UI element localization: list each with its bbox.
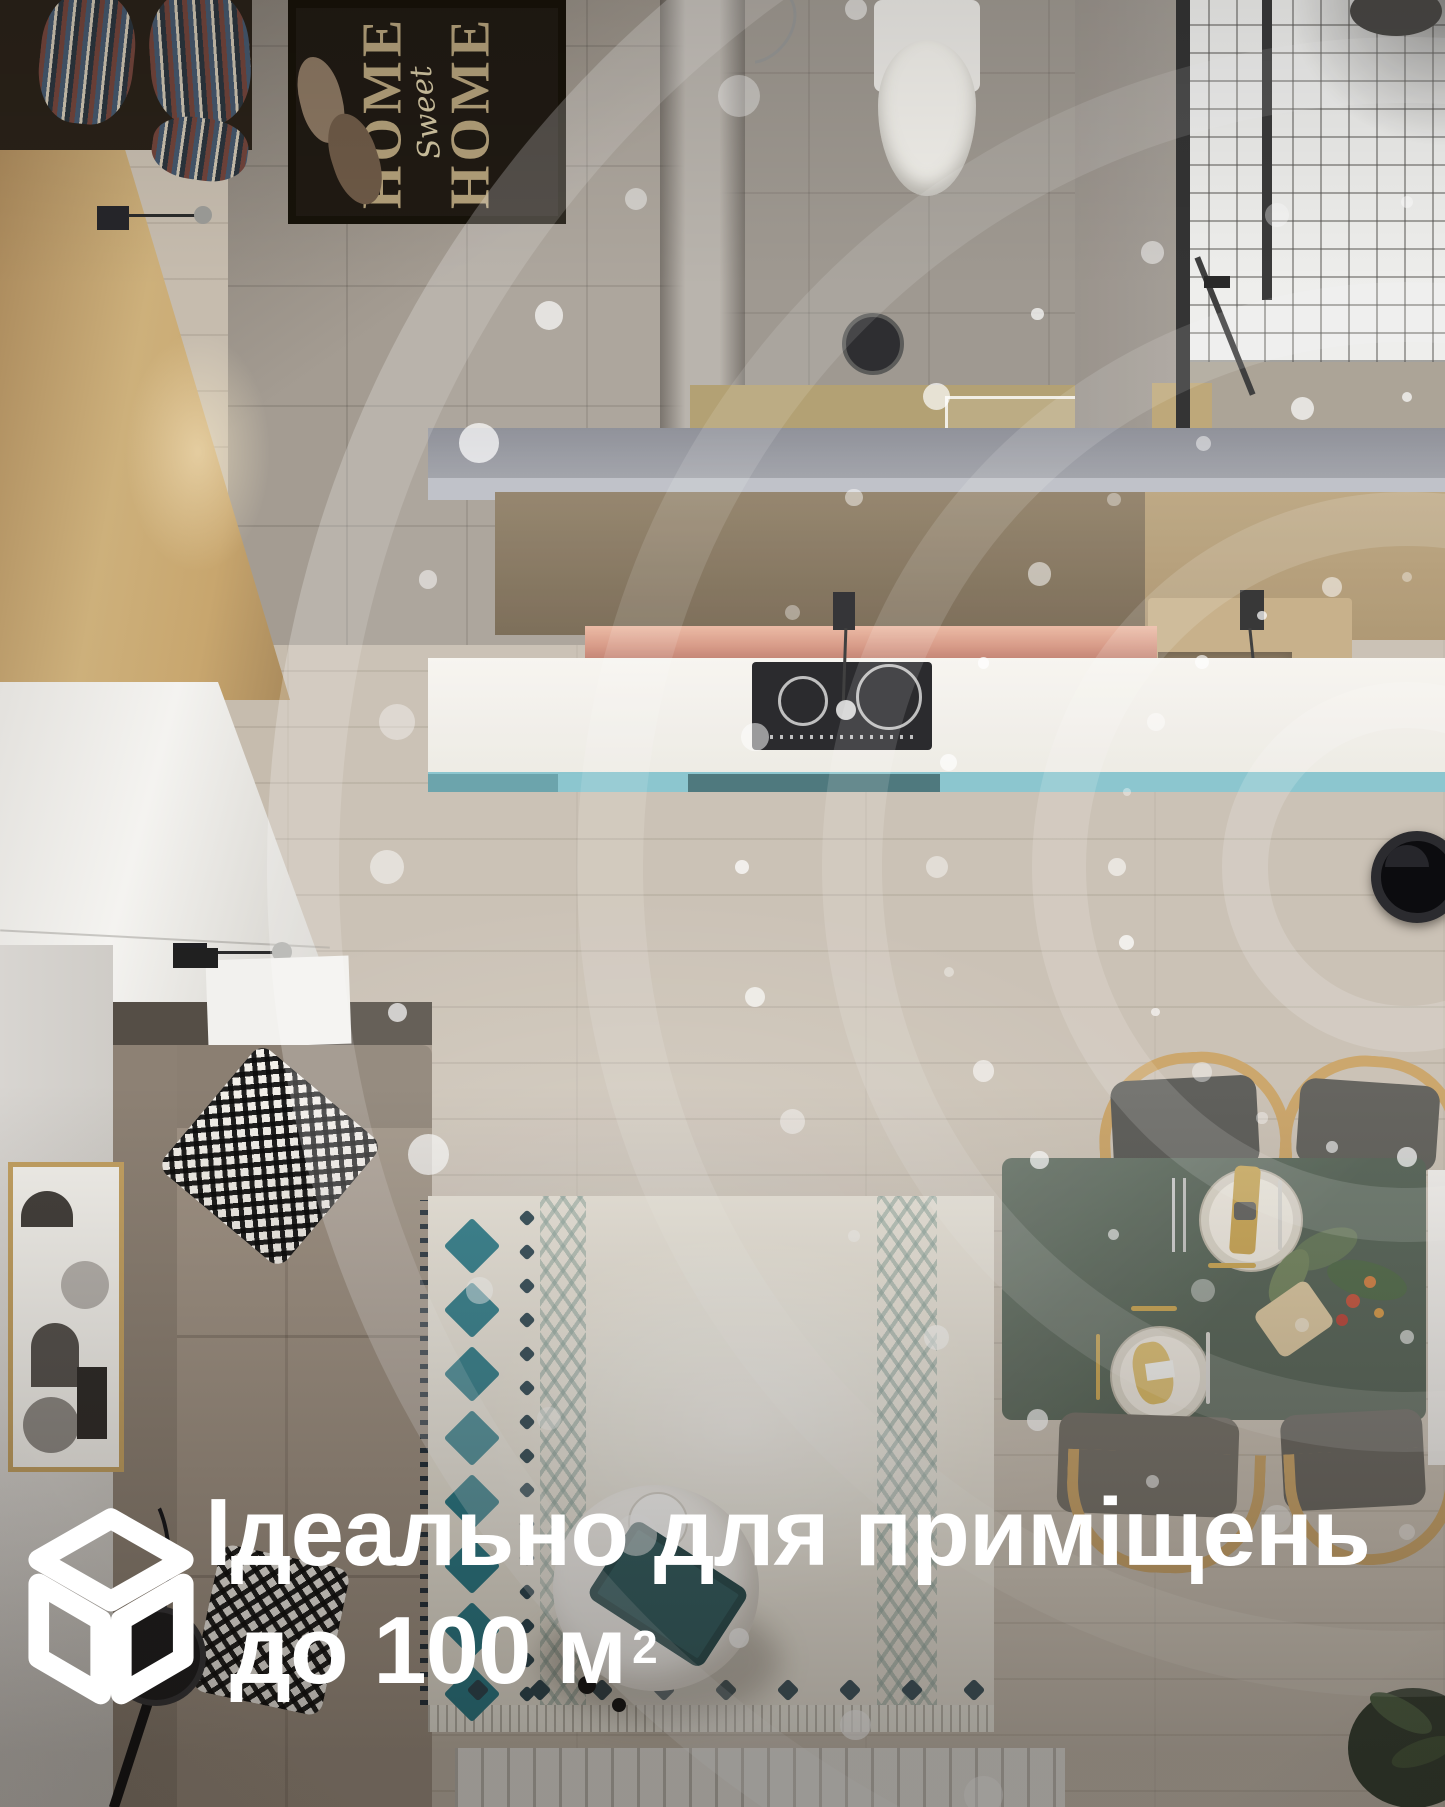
cube-icon [25,1508,197,1708]
product-image-canvas: HOME Sweet HOME [0,0,1445,1807]
headline-superscript: 2 [632,1621,657,1673]
headline-line1: Ідеально для приміщень [205,1478,1370,1588]
text-overlay: Ідеально для приміщень до 100 м2 [0,0,1445,1807]
headline-line2-text: до 100 м [230,1597,626,1704]
headline-line2: до 100 м2 [230,1596,657,1706]
